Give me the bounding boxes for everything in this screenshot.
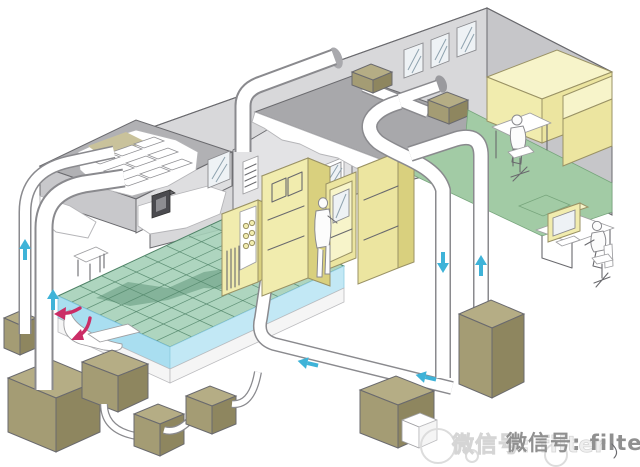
watermark: 微信号: filter 微信号: filter	[421, 429, 640, 466]
partition-wall	[358, 152, 414, 284]
diagram-canvas: 微信号: filter 微信号: filter	[0, 0, 640, 467]
fan-box-3	[186, 386, 236, 434]
operator-head	[318, 198, 327, 208]
watermark-ghost-logo-1	[421, 429, 455, 463]
fan-box-right	[459, 300, 524, 398]
wall-louver-vent	[243, 156, 258, 194]
operator-body	[315, 209, 331, 248]
cleanroom-hvac-isometric-diagram: 微信号: filter 微信号: filter	[0, 0, 640, 467]
office-worker-head	[512, 115, 522, 125]
office-worker-body	[510, 126, 525, 149]
watermark-text: 微信号: filter	[505, 431, 640, 455]
